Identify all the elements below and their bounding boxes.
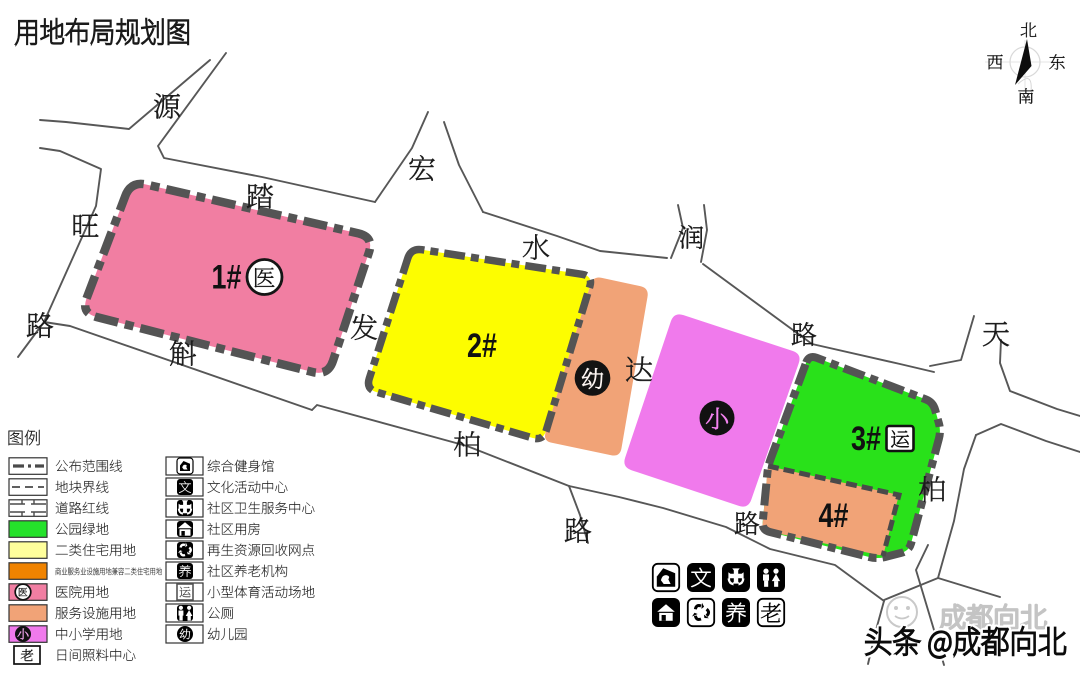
svg-text:3#: 3# (851, 419, 881, 458)
svg-text:1#: 1# (212, 257, 242, 296)
svg-text:2#: 2# (467, 326, 497, 365)
svg-text:4#: 4# (819, 496, 849, 535)
